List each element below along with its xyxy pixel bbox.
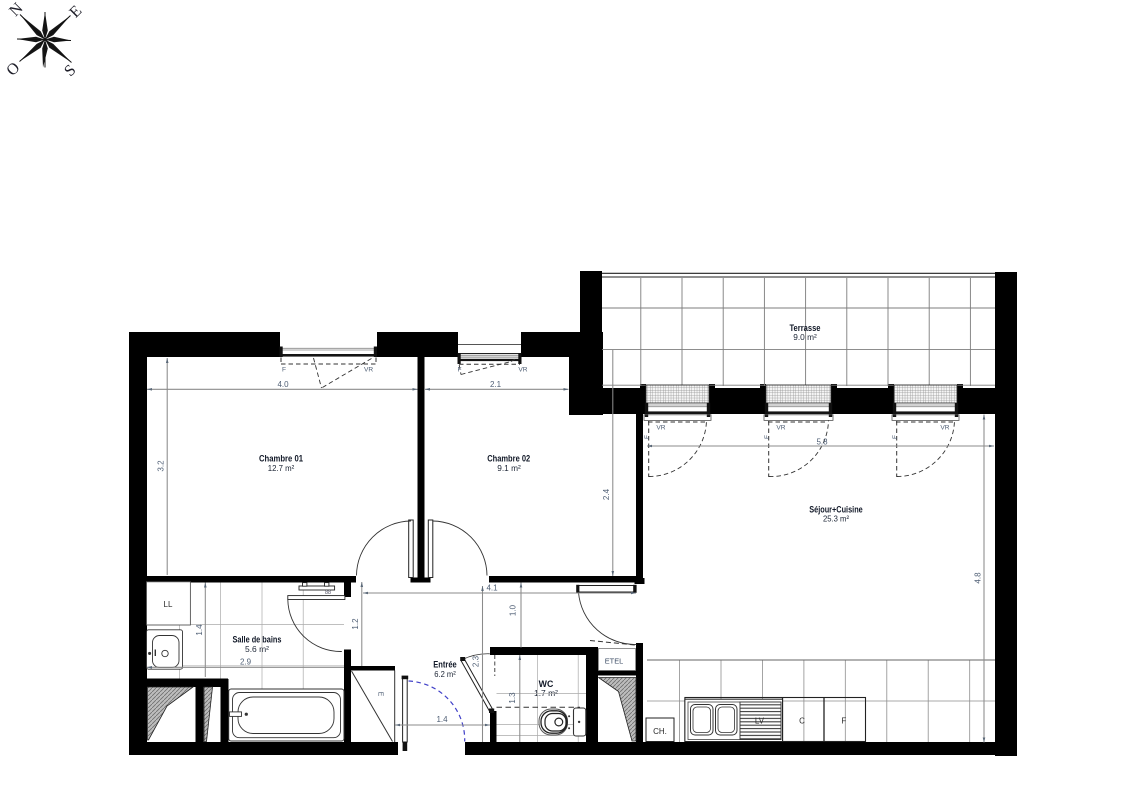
svg-text:VR: VR — [940, 425, 949, 432]
svg-text:VR: VR — [518, 366, 527, 373]
svg-text:9.0 m²: 9.0 m² — [793, 332, 817, 342]
svg-text:1.4: 1.4 — [195, 624, 204, 636]
svg-text:25.3 m²: 25.3 m² — [823, 513, 849, 523]
svg-text:LV: LV — [755, 717, 765, 726]
svg-text:F: F — [764, 435, 771, 439]
svg-text:LL: LL — [164, 600, 173, 609]
svg-text:F: F — [892, 435, 899, 439]
svg-text:2.3: 2.3 — [472, 655, 481, 667]
svg-text:ETEL: ETEL — [605, 657, 624, 666]
svg-text:12.7 m²: 12.7 m² — [268, 463, 295, 473]
svg-text:1.3: 1.3 — [508, 692, 517, 704]
svg-text:C: C — [799, 716, 805, 725]
svg-text:2.1: 2.1 — [490, 380, 502, 389]
svg-text:F: F — [457, 367, 461, 374]
svg-text:1.4: 1.4 — [436, 715, 448, 724]
svg-text:5.8: 5.8 — [816, 437, 828, 446]
svg-text:CH.: CH. — [653, 727, 667, 736]
svg-text:4.0: 4.0 — [277, 380, 289, 389]
svg-text:4.8: 4.8 — [974, 572, 983, 584]
svg-text:F: F — [841, 716, 846, 725]
svg-text:4.1: 4.1 — [486, 584, 498, 593]
svg-text:1.2: 1.2 — [351, 618, 360, 630]
svg-text:F: F — [282, 367, 286, 374]
svg-text:Salle de bains: Salle de bains — [233, 635, 282, 645]
svg-text:1.0: 1.0 — [509, 604, 518, 616]
svg-text:3.2: 3.2 — [157, 460, 166, 472]
svg-text:VR: VR — [776, 425, 785, 432]
svg-text:2.4: 2.4 — [602, 488, 611, 500]
svg-text:F: F — [644, 435, 651, 439]
svg-text:6.2 m²: 6.2 m² — [434, 669, 456, 679]
svg-text:VR: VR — [364, 367, 373, 374]
svg-text:5.6 m²: 5.6 m² — [245, 644, 269, 654]
svg-text:2.9: 2.9 — [240, 657, 252, 666]
svg-text:88: 88 — [325, 590, 331, 596]
svg-text:E: E — [377, 692, 384, 697]
svg-text:VR: VR — [656, 425, 665, 432]
svg-text:9.1 m²: 9.1 m² — [497, 463, 521, 473]
